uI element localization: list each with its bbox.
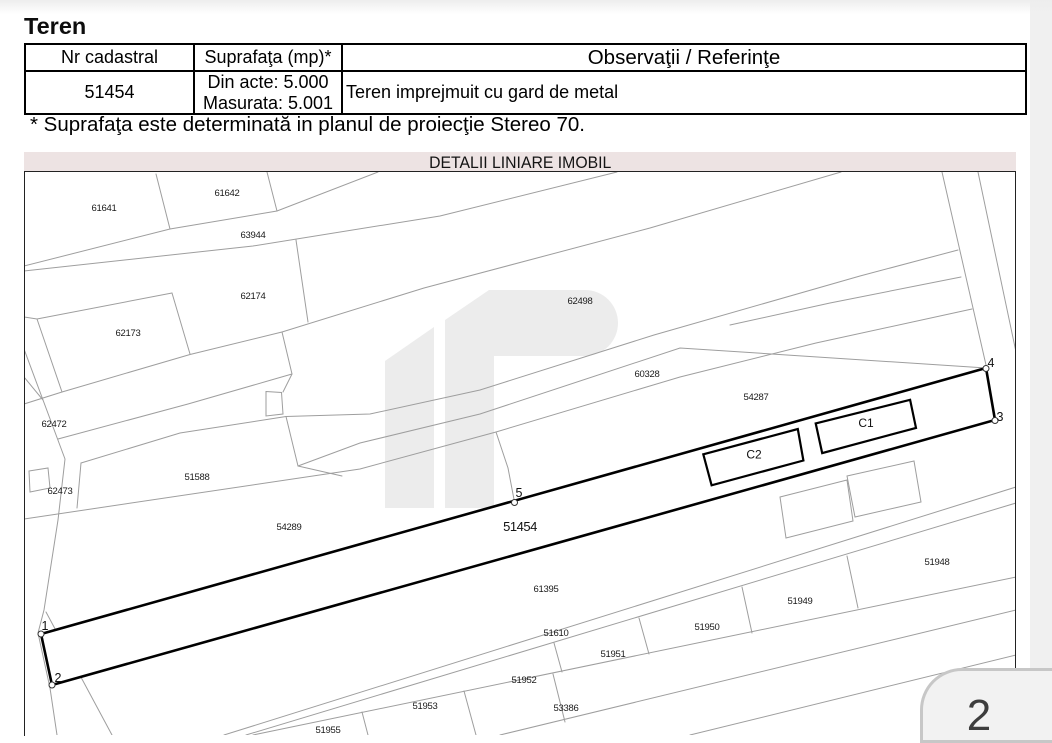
svg-text:62472: 62472 — [42, 419, 67, 430]
svg-text:54287: 54287 — [744, 392, 769, 403]
svg-text:62174: 62174 — [241, 291, 266, 302]
svg-text:54289: 54289 — [277, 522, 302, 533]
svg-text:60328: 60328 — [635, 369, 660, 380]
svg-text:62473: 62473 — [48, 486, 73, 497]
svg-text:51454: 51454 — [503, 519, 537, 534]
svg-text:51610: 51610 — [544, 628, 569, 639]
svg-text:62498: 62498 — [568, 296, 593, 307]
svg-text:61395: 61395 — [534, 584, 559, 595]
svg-text:63944: 63944 — [241, 230, 266, 241]
svg-text:51949: 51949 — [788, 596, 813, 607]
svg-text:51950: 51950 — [695, 622, 720, 633]
svg-text:5: 5 — [516, 486, 523, 500]
svg-text:1: 1 — [42, 619, 49, 633]
svg-text:51948: 51948 — [925, 557, 950, 568]
svg-text:C1: C1 — [858, 416, 874, 430]
svg-text:61642: 61642 — [215, 188, 240, 199]
svg-text:51951: 51951 — [601, 649, 626, 660]
svg-text:4: 4 — [988, 356, 995, 370]
svg-text:51952: 51952 — [512, 675, 537, 686]
svg-text:53386: 53386 — [554, 703, 579, 714]
svg-text:3: 3 — [997, 410, 1004, 424]
svg-text:2: 2 — [55, 671, 62, 685]
svg-text:51955: 51955 — [316, 725, 341, 735]
svg-text:62173: 62173 — [116, 328, 141, 339]
svg-text:51588: 51588 — [185, 472, 210, 483]
svg-text:C2: C2 — [746, 448, 762, 462]
svg-text:61641: 61641 — [92, 203, 117, 214]
svg-text:51953: 51953 — [413, 701, 438, 712]
